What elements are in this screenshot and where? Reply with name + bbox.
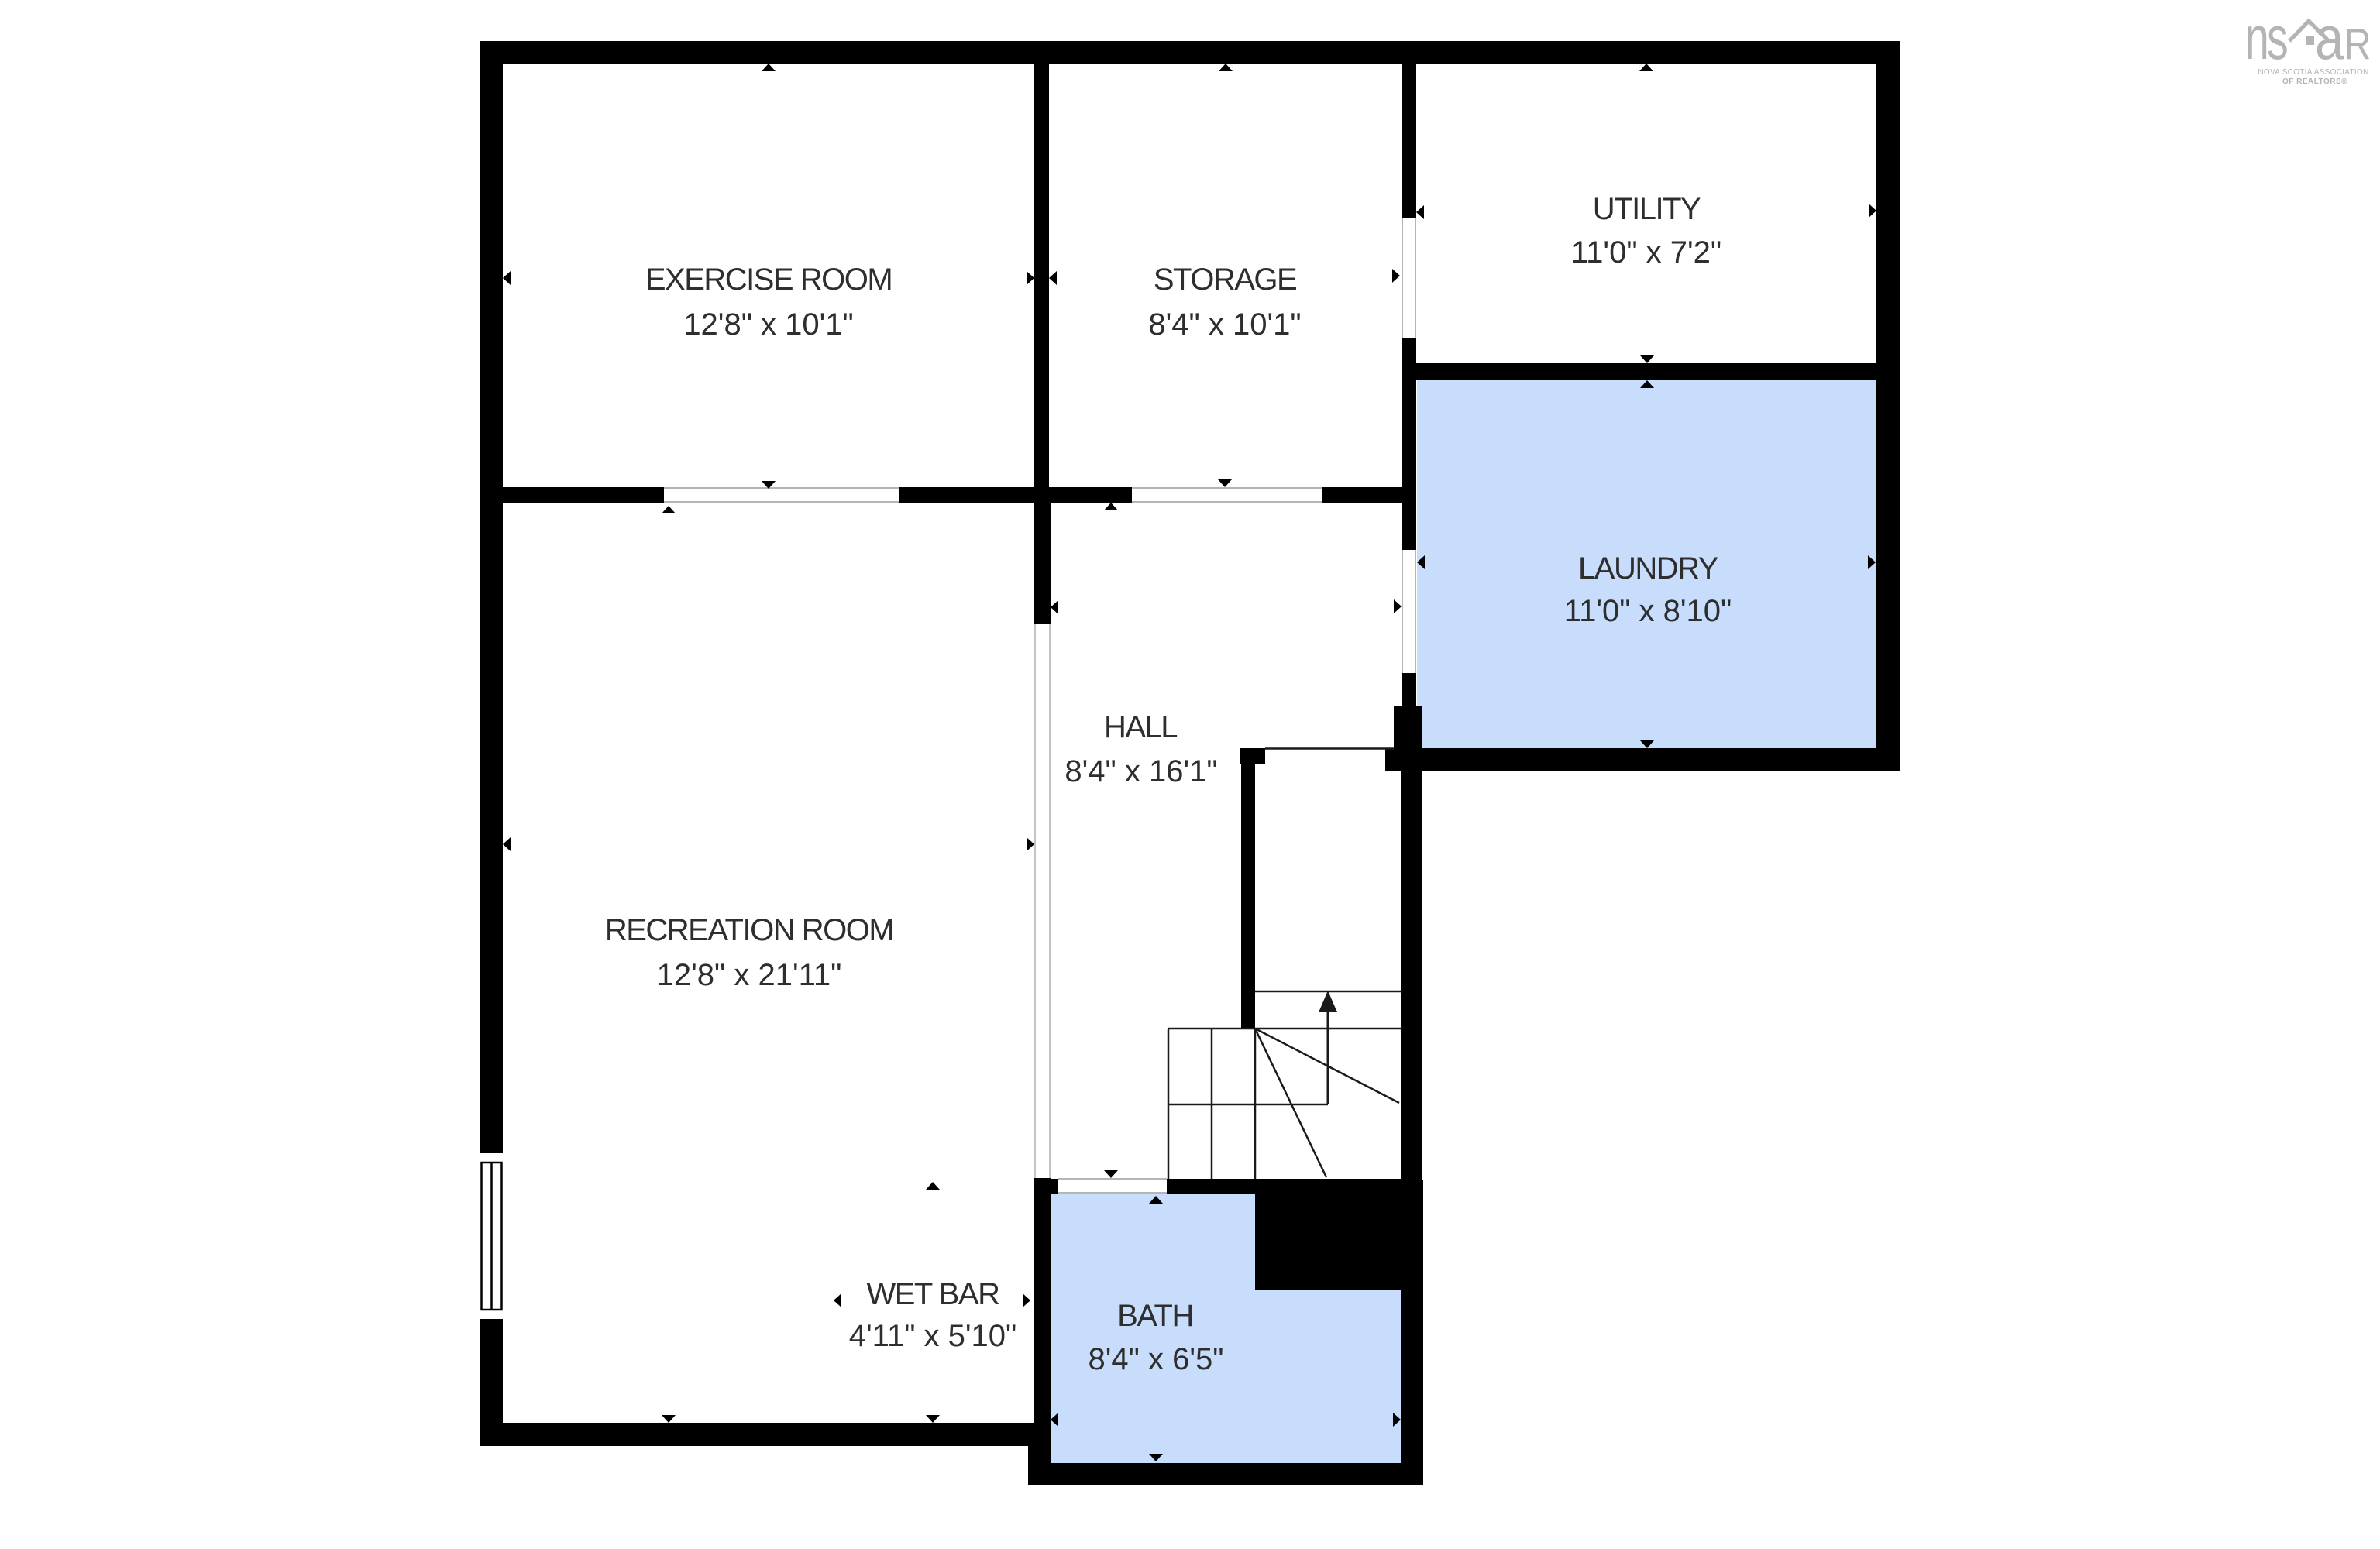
svg-text:12'8" x 21'11": 12'8" x 21'11" xyxy=(657,958,842,992)
svg-text:BATH: BATH xyxy=(1117,1299,1193,1333)
svg-text:8'4" x 16'1": 8'4" x 16'1" xyxy=(1064,754,1217,788)
svg-text:EXERCISE ROOM: EXERCISE ROOM xyxy=(645,263,892,297)
svg-text:12'8" x 10'1": 12'8" x 10'1" xyxy=(683,307,853,342)
svg-text:R: R xyxy=(2344,19,2371,69)
svg-text:4'11" x 5'10": 4'11" x 5'10" xyxy=(849,1319,1016,1353)
svg-text:HALL: HALL xyxy=(1104,710,1177,744)
svg-text:11'0" x 7'2": 11'0" x 7'2" xyxy=(1571,235,1721,270)
svg-text:ns: ns xyxy=(2245,4,2287,72)
svg-text:UTILITY: UTILITY xyxy=(1593,192,1701,226)
svg-text:NOVA SCOTIA ASSOCIATION: NOVA SCOTIA ASSOCIATION xyxy=(2258,68,2368,77)
svg-text:8'4" x 10'1": 8'4" x 10'1" xyxy=(1148,307,1301,342)
svg-text:RECREATION ROOM: RECREATION ROOM xyxy=(605,913,893,947)
svg-text:WET BAR: WET BAR xyxy=(866,1277,999,1311)
svg-text:OF REALTORS®: OF REALTORS® xyxy=(2282,77,2347,86)
svg-text:STORAGE: STORAGE xyxy=(1154,263,1296,297)
svg-text:8'4" x 6'5": 8'4" x 6'5" xyxy=(1089,1342,1224,1376)
svg-text:a: a xyxy=(2315,4,2344,72)
svg-text:LAUNDRY: LAUNDRY xyxy=(1578,551,1718,586)
svg-text:11'0" x 8'10": 11'0" x 8'10" xyxy=(1564,594,1732,628)
